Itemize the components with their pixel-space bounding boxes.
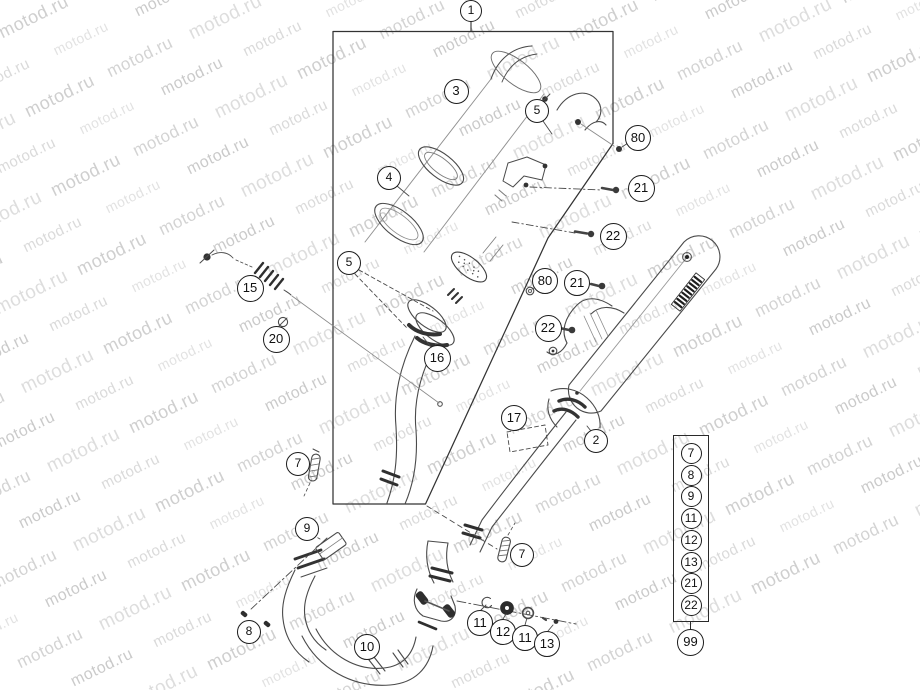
callout-21[interactable]: 21 xyxy=(628,175,655,202)
callout-5[interactable]: 5 xyxy=(337,251,361,275)
callout-2[interactable]: 2 xyxy=(584,429,608,453)
callout-9[interactable]: 9 xyxy=(295,517,319,541)
legend-item-8[interactable]: 8 xyxy=(681,465,702,486)
callout-15[interactable]: 15 xyxy=(237,275,264,302)
callout-80[interactable]: 80 xyxy=(532,268,558,294)
legend-item-9[interactable]: 9 xyxy=(681,486,702,507)
callout-17[interactable]: 17 xyxy=(501,405,527,431)
callout-8[interactable]: 8 xyxy=(237,620,261,644)
callout-5[interactable]: 5 xyxy=(525,99,549,123)
callout-13[interactable]: 13 xyxy=(534,631,560,657)
callout-10[interactable]: 10 xyxy=(354,634,380,660)
callout-4[interactable]: 4 xyxy=(377,166,401,190)
parts-diagram-page: motod.rumotod.rumotod.rumotod.rumotod.ru… xyxy=(0,0,920,690)
callout-1[interactable]: 1 xyxy=(460,0,482,22)
callout-3[interactable]: 3 xyxy=(444,79,469,104)
legend-item-22[interactable]: 22 xyxy=(681,595,702,616)
legend-item-21[interactable]: 21 xyxy=(681,573,702,594)
callout-21[interactable]: 21 xyxy=(564,270,590,296)
callout-16[interactable]: 16 xyxy=(424,345,451,372)
legend-list: 7891112132122 xyxy=(674,436,708,621)
legend-item-12[interactable]: 12 xyxy=(681,530,702,551)
legend-item-11[interactable]: 11 xyxy=(681,508,702,529)
callout-layer: 1358042122580211522201617279781011121113 xyxy=(0,0,920,690)
legend-box: 7891112132122 xyxy=(673,435,709,622)
legend-item-13[interactable]: 13 xyxy=(681,552,702,573)
callout-7[interactable]: 7 xyxy=(510,543,534,567)
legend-item-7[interactable]: 7 xyxy=(681,443,702,464)
callout-20[interactable]: 20 xyxy=(263,326,290,353)
callout-80[interactable]: 80 xyxy=(625,125,651,151)
callout-7[interactable]: 7 xyxy=(286,452,310,476)
callout-22[interactable]: 22 xyxy=(535,315,562,342)
callout-22[interactable]: 22 xyxy=(600,223,627,250)
legend-footer-callout[interactable]: 99 xyxy=(677,629,704,656)
